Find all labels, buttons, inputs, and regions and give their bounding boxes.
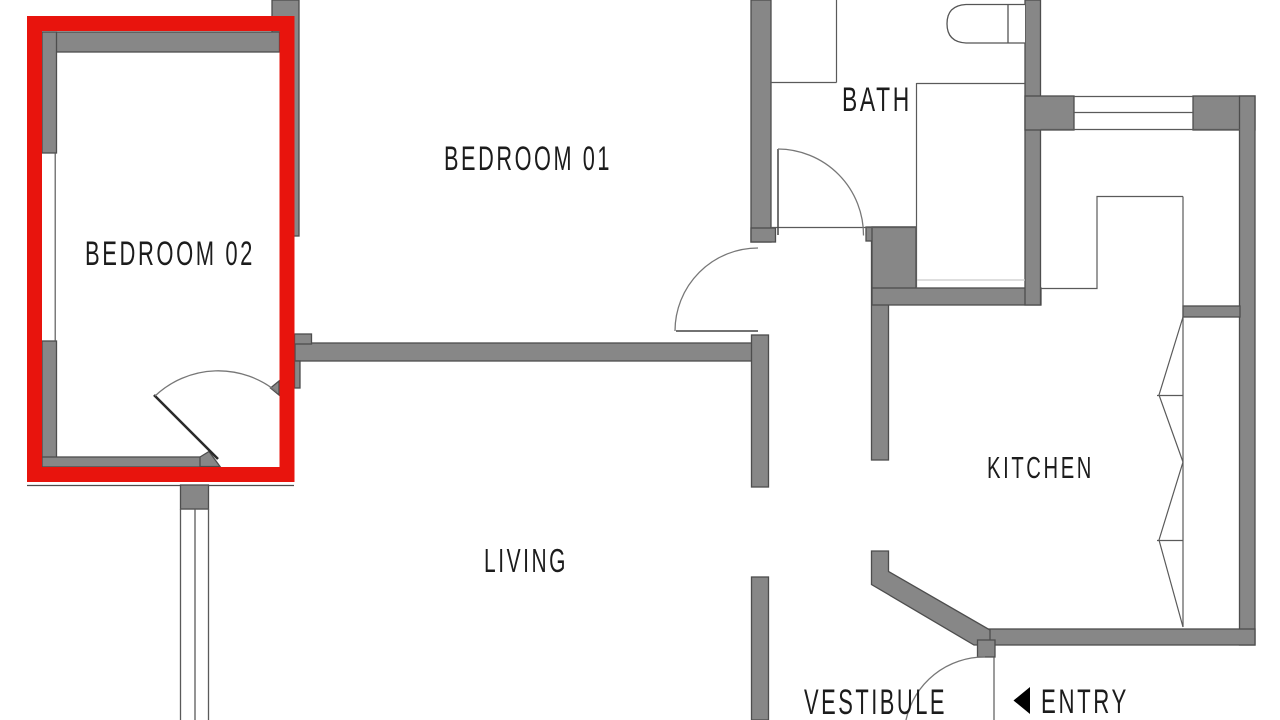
svg-text:BEDROOM 01: BEDROOM 01 <box>444 140 612 178</box>
svg-text:BEDROOM 02: BEDROOM 02 <box>85 235 255 273</box>
svg-text:LIVING: LIVING <box>484 542 568 579</box>
svg-text:VESTIBULE: VESTIBULE <box>804 683 947 720</box>
svg-text:BATH: BATH <box>842 81 912 119</box>
svg-text:KITCHEN: KITCHEN <box>987 450 1094 485</box>
svg-text:ENTRY: ENTRY <box>1041 683 1129 720</box>
